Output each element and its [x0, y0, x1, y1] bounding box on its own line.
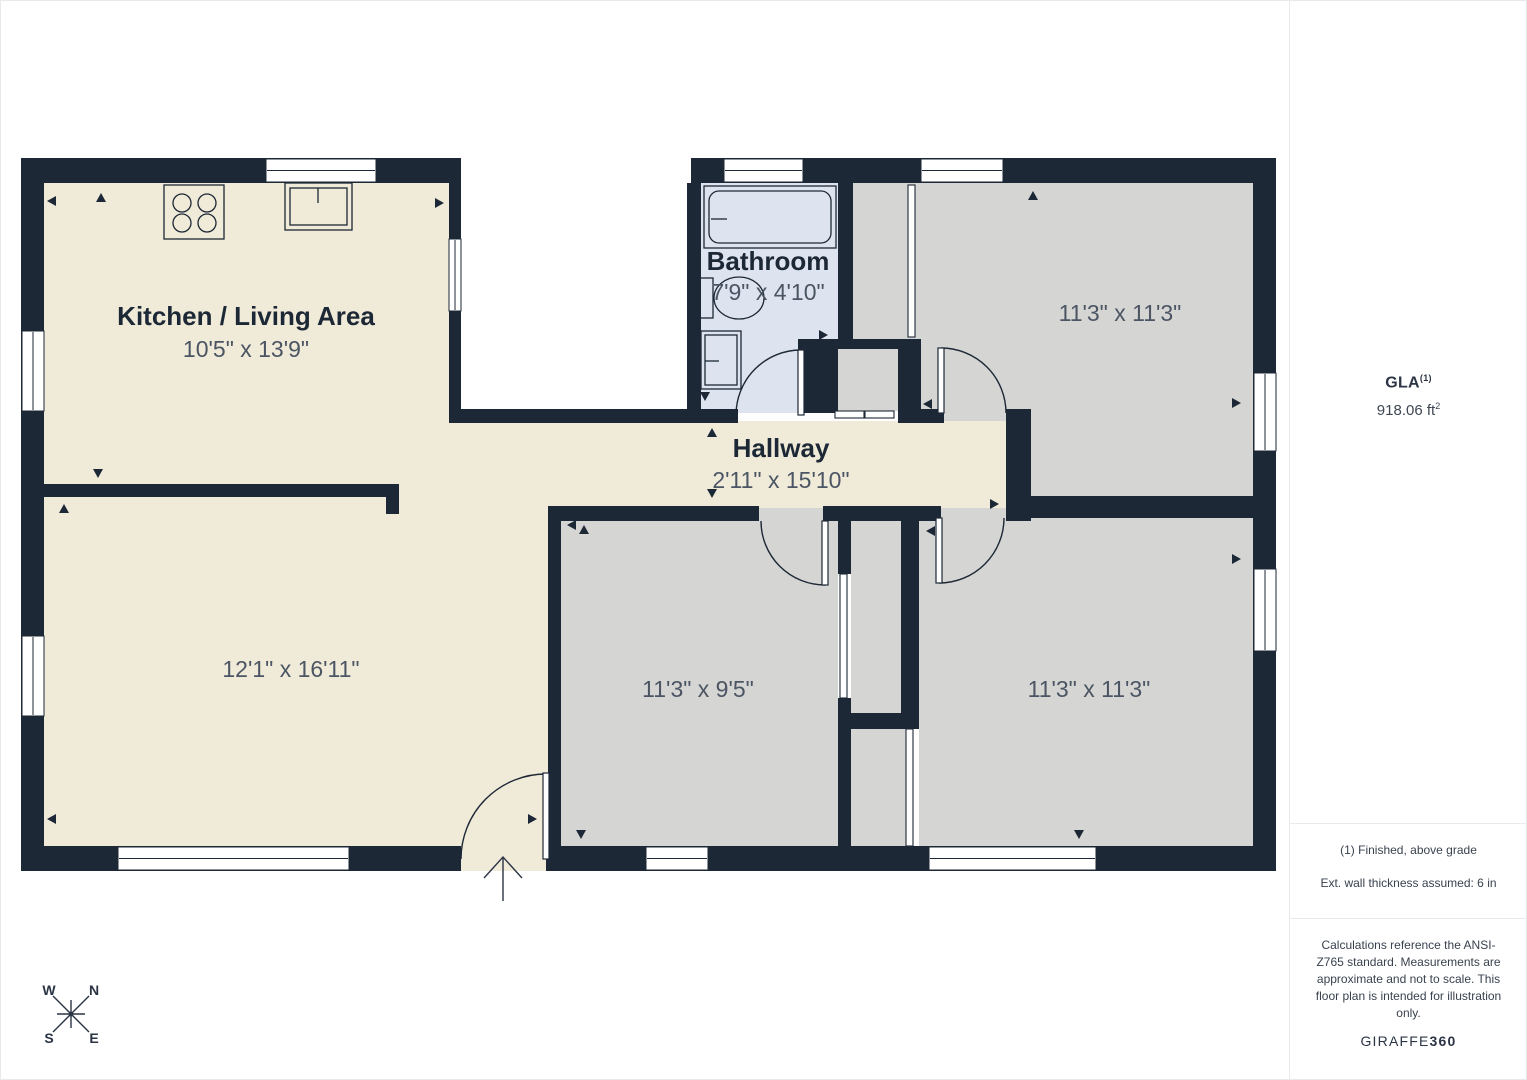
- note-finished-above-grade: (1) Finished, above grade: [1290, 843, 1527, 857]
- window: [1254, 373, 1276, 451]
- disclaimer-text: Calculations reference the ANSI-Z765 sta…: [1290, 919, 1527, 1022]
- wall: [386, 484, 399, 514]
- window: [1254, 569, 1276, 651]
- window: [921, 159, 1003, 182]
- wall: [898, 409, 944, 423]
- compass-s: S: [44, 1030, 53, 1046]
- wall: [851, 713, 919, 729]
- wall: [548, 506, 561, 846]
- wall: [691, 409, 738, 423]
- legal-block: Calculations reference the ANSI-Z765 sta…: [1290, 918, 1527, 1080]
- wall: [687, 183, 701, 423]
- window: [449, 239, 461, 311]
- closet-hallway-floor: [838, 349, 898, 411]
- room-dim-bedroom-bottomright: 11'3" x 11'3": [1028, 676, 1151, 702]
- wall: [838, 698, 851, 846]
- compass-center-dot: [69, 1012, 74, 1017]
- window: [929, 847, 1096, 870]
- closet-sliding-door: [908, 185, 915, 337]
- closet-top-floor: [853, 183, 916, 339]
- window: [22, 636, 44, 716]
- room-dim-bathroom: 7'9" x 4'10": [711, 279, 824, 305]
- room-label-kitchen-living: Kitchen / Living Area: [117, 301, 375, 331]
- closet-bottom-floor: [851, 729, 913, 846]
- wall: [1253, 158, 1276, 871]
- wall: [898, 339, 921, 418]
- closet-bifold-door: [835, 411, 864, 418]
- closet-bifold-door: [865, 411, 894, 418]
- window: [118, 847, 349, 870]
- room-dim-bedroom-topright: 11'3" x 11'3": [1059, 300, 1182, 326]
- room-hallway-floor: [399, 421, 1008, 508]
- compass-e: E: [89, 1030, 98, 1046]
- compass-w: W: [42, 982, 56, 998]
- room-dim-hallway: 2'11" x 15'10": [712, 467, 849, 493]
- wall: [21, 484, 399, 497]
- room-label-bathroom: Bathroom: [707, 246, 830, 276]
- closet-middle-floor: [851, 521, 901, 713]
- closet-sliding-door: [906, 729, 913, 846]
- room-label-hallway: Hallway: [733, 433, 830, 463]
- gla-footnote-marker: (1): [1420, 373, 1432, 383]
- wall: [1021, 496, 1253, 518]
- floorplan-page: Kitchen / Living Area 10'5" x 13'9" 12'1…: [0, 0, 1527, 1080]
- floor-areas: [33, 181, 1253, 871]
- wall: [21, 158, 44, 871]
- wall: [21, 158, 461, 183]
- notes-block: (1) Finished, above grade Ext. wall thic…: [1290, 823, 1527, 890]
- closet-sliding-door: [840, 574, 847, 698]
- wall: [449, 409, 691, 423]
- window: [724, 159, 803, 182]
- compass-rose: W N S E: [42, 982, 99, 1046]
- wall: [838, 518, 851, 574]
- window: [266, 159, 376, 182]
- window: [646, 847, 708, 870]
- info-sidebar: GLA(1) 918.06 ft2 (1) Finished, above gr…: [1289, 1, 1527, 1080]
- giraffe360-logo: GIRAFFE360: [1290, 1033, 1527, 1049]
- room-dim-living: 12'1" x 16'11": [222, 656, 359, 682]
- wall: [548, 506, 759, 521]
- compass-n: N: [89, 982, 99, 998]
- note-wall-thickness: Ext. wall thickness assumed: 6 in: [1290, 876, 1527, 890]
- wall: [838, 339, 898, 349]
- wall: [901, 521, 919, 729]
- gla-value: 918.06 ft2: [1290, 401, 1527, 419]
- window: [22, 331, 44, 411]
- room-dim-kitchen-living: 10'5" x 13'9": [183, 336, 309, 362]
- gla-title: GLA(1): [1290, 373, 1527, 392]
- wall: [838, 183, 853, 339]
- gla-block: GLA(1) 918.06 ft2: [1290, 373, 1527, 419]
- gla-label: GLA: [1385, 374, 1420, 391]
- room-dim-bedroom-bottommiddle: 11'3" x 9'5": [642, 676, 754, 702]
